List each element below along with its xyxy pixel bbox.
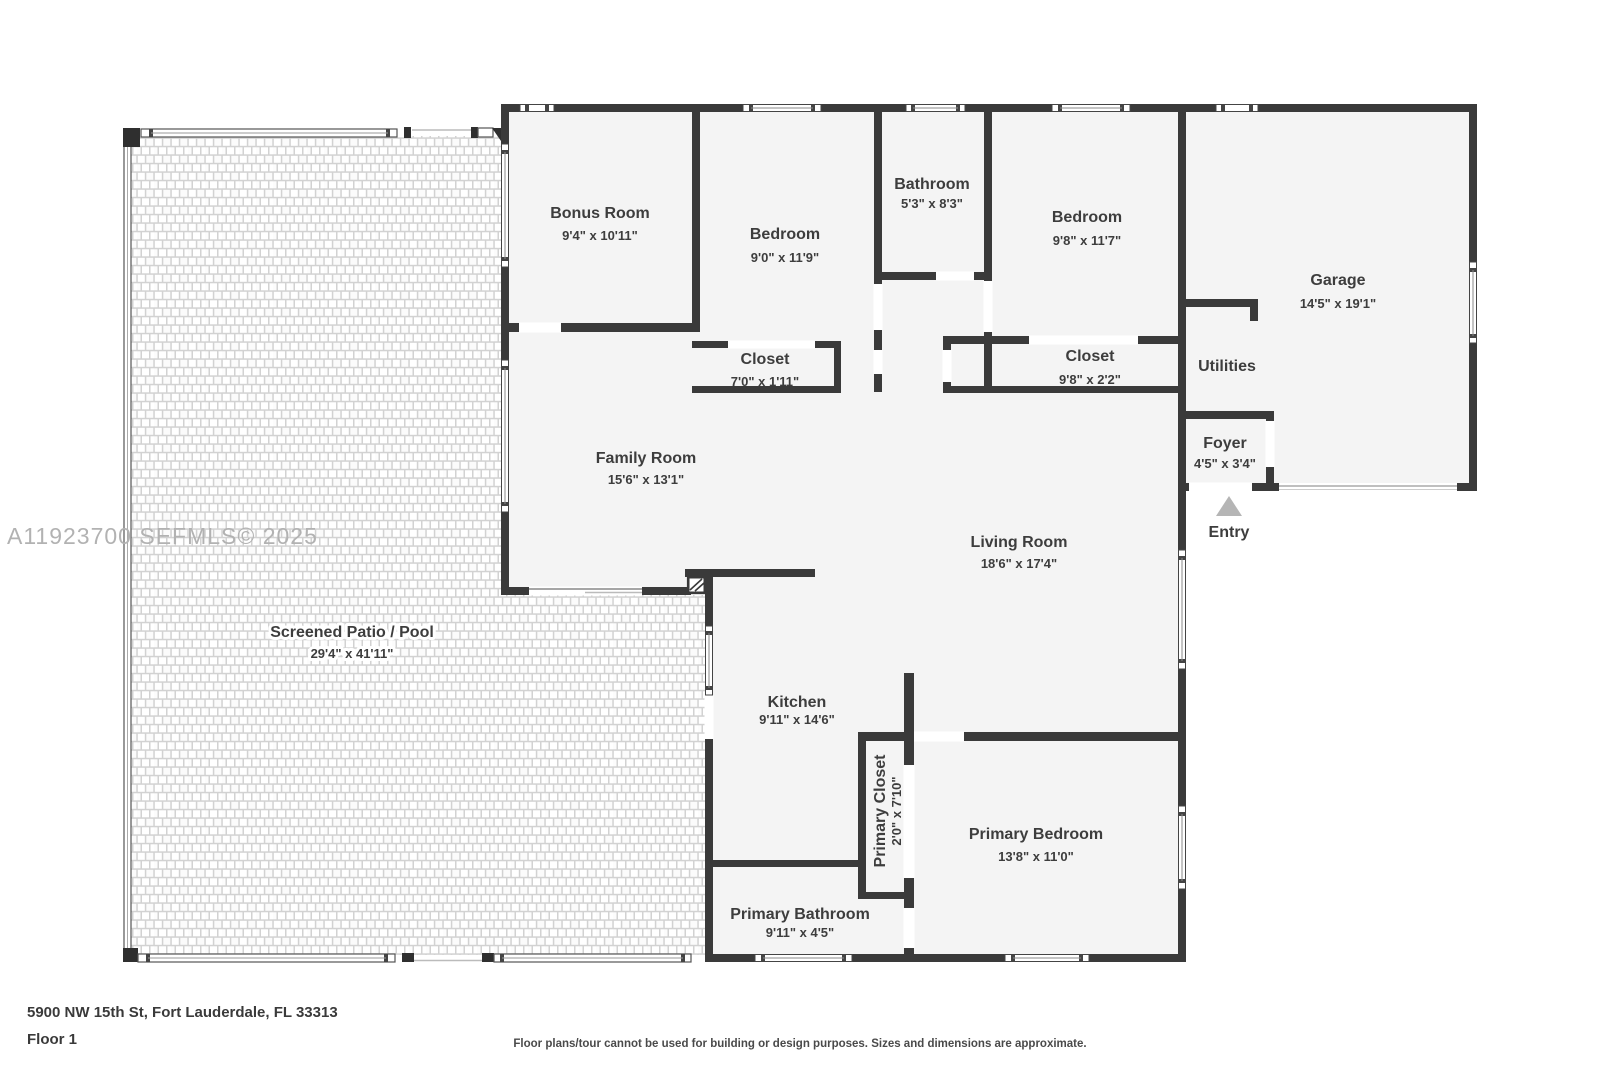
svg-text:5900 NW 15th St, Fort Lauderda: 5900 NW 15th St, Fort Lauderdale, FL 333…: [27, 1004, 338, 1021]
svg-text:Utilities: Utilities: [1198, 358, 1256, 375]
svg-text:Primary Bedroom: Primary Bedroom: [969, 826, 1103, 843]
svg-text:Bathroom: Bathroom: [894, 176, 970, 193]
svg-text:2'0" x 7'10": 2'0" x 7'10": [889, 776, 904, 845]
svg-text:7'0" x 1'11": 7'0" x 1'11": [731, 374, 799, 389]
svg-text:Closet: Closet: [741, 351, 791, 368]
svg-text:Floor 1: Floor 1: [27, 1031, 77, 1048]
svg-text:Garage: Garage: [1310, 272, 1365, 289]
svg-text:Family Room: Family Room: [596, 450, 696, 467]
svg-text:Closet: Closet: [1066, 348, 1116, 365]
svg-text:Bedroom: Bedroom: [1052, 209, 1122, 226]
svg-text:Kitchen: Kitchen: [768, 694, 827, 711]
svg-text:Floor plans/tour cannot be use: Floor plans/tour cannot be used for buil…: [513, 1038, 1086, 1050]
svg-text:14'5" x 19'1": 14'5" x 19'1": [1300, 296, 1376, 311]
svg-text:9'4" x 10'11": 9'4" x 10'11": [562, 228, 638, 243]
svg-text:Entry: Entry: [1209, 524, 1250, 541]
svg-text:Screened Patio / Pool: Screened Patio / Pool: [270, 624, 434, 641]
svg-text:9'0" x 11'9": 9'0" x 11'9": [751, 250, 819, 265]
svg-text:13'8" x 11'0": 13'8" x 11'0": [998, 849, 1074, 864]
svg-text:15'6" x 13'1": 15'6" x 13'1": [608, 472, 684, 487]
svg-text:Primary Closet: Primary Closet: [872, 754, 889, 868]
svg-text:4'5" x 3'4": 4'5" x 3'4": [1194, 456, 1256, 471]
svg-text:29'4" x 41'11": 29'4" x 41'11": [311, 646, 394, 661]
svg-text:Primary Bathroom: Primary Bathroom: [730, 906, 870, 923]
svg-text:Bedroom: Bedroom: [750, 226, 820, 243]
svg-text:9'11" x 4'5": 9'11" x 4'5": [766, 925, 834, 940]
svg-text:18'6" x 17'4": 18'6" x 17'4": [981, 556, 1057, 571]
svg-text:Living Room: Living Room: [971, 534, 1068, 551]
svg-text:5'3" x 8'3": 5'3" x 8'3": [901, 196, 963, 211]
svg-text:9'8" x 2'2": 9'8" x 2'2": [1059, 372, 1121, 387]
svg-text:9'8" x 11'7": 9'8" x 11'7": [1053, 233, 1121, 248]
svg-text:9'11" x 14'6": 9'11" x 14'6": [759, 712, 835, 727]
svg-text:Foyer: Foyer: [1203, 435, 1247, 452]
svg-text:Bonus Room: Bonus Room: [550, 205, 650, 222]
svg-text:A11923700 SEFMLS© 2025: A11923700 SEFMLS© 2025: [7, 523, 318, 549]
